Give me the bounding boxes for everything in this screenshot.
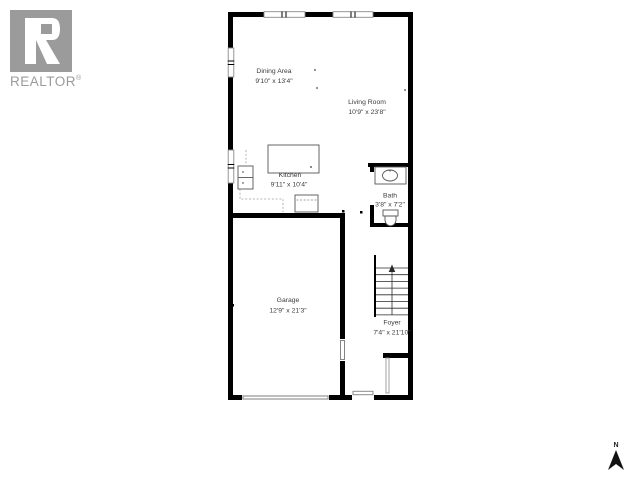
room-dims-garage: 12'9" x 21'3"	[269, 308, 307, 315]
north-label: N	[613, 442, 618, 449]
room-label-bath: Bath	[383, 193, 397, 200]
room-label-living: Living Room	[348, 99, 386, 106]
wall-garage-right	[340, 213, 345, 400]
bath-doorway	[370, 172, 375, 205]
kitchen-island	[268, 145, 319, 173]
window-top-2	[333, 12, 373, 18]
front-door	[352, 391, 374, 400]
floorplan-page: REALTOR®	[0, 0, 640, 480]
ceiling-dot	[314, 69, 316, 71]
room-dims-living: 10'9" x 23'8"	[348, 109, 386, 116]
room-labels: Dining Area 9'10" x 13'4" Living Room 10…	[255, 68, 411, 337]
garage-door	[242, 395, 329, 400]
room-label-kitchen: Kitchen	[279, 172, 302, 179]
floorplan-drawing: Dining Area 9'10" x 13'4" Living Room 10…	[0, 0, 640, 480]
bath-sink	[375, 167, 406, 184]
island-sink-dot	[310, 166, 312, 168]
wall-top	[228, 12, 413, 17]
room-label-dining: Dining Area	[256, 68, 291, 75]
room-label-garage: Garage	[277, 297, 300, 304]
room-dims-dining: 9'10" x 13'4"	[255, 78, 293, 85]
window-top-1	[264, 12, 305, 18]
garage-foyer-door	[340, 339, 346, 361]
ceiling-dots	[314, 69, 406, 91]
room-dims-foyer: 7'4" x 21'10"	[373, 330, 411, 337]
ceiling-dot	[404, 89, 406, 91]
north-compass: N	[608, 442, 624, 470]
wall-right	[408, 12, 413, 400]
kitchen-range	[295, 195, 318, 212]
wall-bath-top	[368, 163, 413, 167]
kitchen-sink	[238, 166, 253, 189]
staircase	[374, 255, 408, 317]
wall-tick-2	[360, 211, 363, 214]
window-left-1	[228, 48, 234, 77]
closet-door	[386, 358, 389, 393]
wall-foyer-closet	[383, 353, 408, 358]
window-left-2	[228, 150, 234, 183]
wall-tick-1	[342, 210, 345, 213]
wall-garage-top	[228, 213, 345, 218]
ceiling-dot	[316, 87, 318, 89]
stair-stringer	[374, 255, 376, 317]
room-dims-kitchen: 9'11" x 10'4"	[271, 182, 308, 189]
room-dims-bath: 3'8" x 7'2"	[375, 202, 405, 209]
north-arrow-icon	[608, 450, 624, 470]
wall-tick-3	[231, 304, 234, 307]
room-label-foyer: Foyer	[383, 320, 401, 327]
